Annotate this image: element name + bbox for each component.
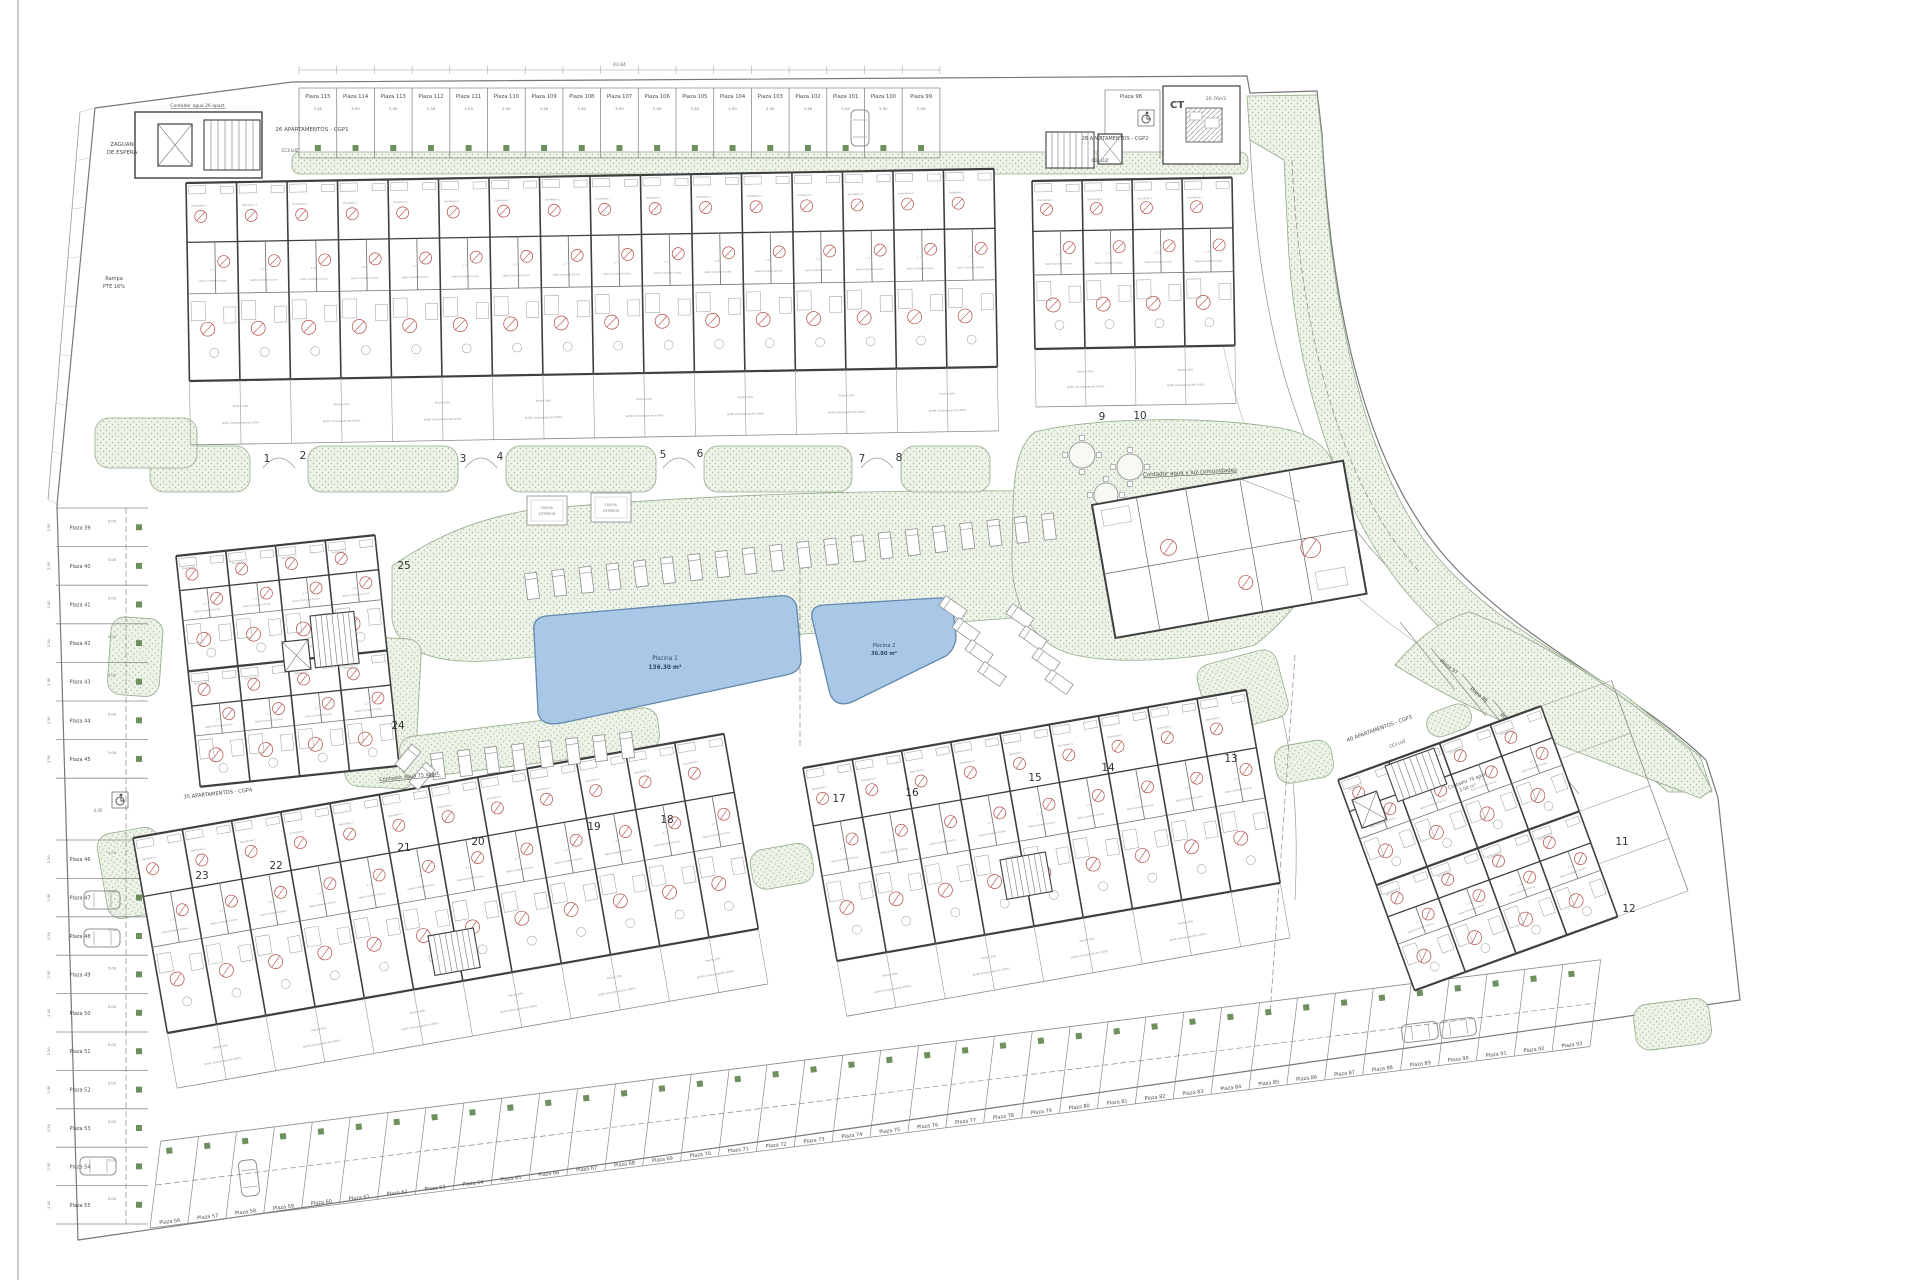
- plan-line: [1135, 1017, 1146, 1104]
- stall-planter: [353, 145, 359, 151]
- plan-line: [709, 937, 719, 992]
- stall-planter: [136, 640, 142, 646]
- unit-number: 18: [660, 814, 673, 826]
- parking-stall-label: Plaza 50: [69, 1011, 90, 1017]
- stall-planter: [1492, 980, 1499, 987]
- site-plan-sheet[interactable]: 43.84Plaza 1152.50Plaza 1142.50Plaza 113…: [0, 0, 1920, 1280]
- green-mound: [506, 446, 656, 492]
- parking-stall-label: Plaza 82: [1144, 1094, 1166, 1103]
- plan-label: Dormitorio 1: [848, 193, 864, 196]
- plan-label: 2.77: [563, 261, 569, 265]
- parking-stall-label: Plaza 104: [720, 94, 746, 100]
- stall-planter: [880, 145, 886, 151]
- plan-label: 5.00: [108, 635, 117, 639]
- plan-line: [1133, 229, 1183, 230]
- plan-line: [846, 370, 847, 434]
- plan-line: [1428, 1024, 1430, 1038]
- parking-stall-label: Plaza 105: [682, 94, 707, 100]
- plan-line: [1363, 988, 1374, 1075]
- parking-stall-label: Plaza 40: [69, 564, 90, 570]
- plan-line: [837, 961, 847, 1016]
- plan-label: DUCHA: [541, 506, 553, 510]
- plan-label: Porche 20%: [233, 404, 249, 408]
- elevator-shaft: [282, 639, 311, 672]
- parking-stall-label: Plaza 88: [1372, 1065, 1394, 1074]
- parking-stall-label: Plaza 81: [1106, 1098, 1128, 1107]
- plan-label: 2.50: [804, 106, 813, 111]
- stall-planter: [1454, 985, 1461, 992]
- plan-line: [238, 241, 288, 242]
- parking-stall-label: Plaza 72: [765, 1141, 787, 1150]
- plan-line: [240, 379, 290, 380]
- plan-label: Salón-Comedor-Cocina: [755, 270, 783, 273]
- zaguan-label: DE ESPERA: [107, 150, 138, 156]
- plan-line: [843, 230, 893, 231]
- plan-label: 5.00: [108, 519, 117, 523]
- car-outline: [238, 1159, 260, 1197]
- plan-line: [442, 377, 443, 441]
- unit-number: 1: [264, 453, 271, 465]
- plan-label: 2.77: [765, 258, 771, 262]
- parking-stall-label: Plaza 47: [69, 896, 90, 902]
- parking-stall-label: Plaza 114: [343, 94, 369, 100]
- plan-label: 2.50: [578, 106, 587, 111]
- stall-planter: [1530, 975, 1537, 982]
- parking-stall-label: Plaza 87: [1334, 1070, 1356, 1079]
- plan-line: [290, 379, 291, 443]
- plan-label: Dormitorio 1: [393, 201, 409, 204]
- plan-label: 2.50: [728, 106, 737, 111]
- plan-line: [694, 372, 695, 436]
- plan-label: 5.00: [108, 890, 117, 894]
- plan-label: Dormitorio 1: [747, 195, 763, 198]
- stall-planter: [136, 1087, 142, 1093]
- green-mound: [1272, 738, 1336, 785]
- plan-line: [1514, 969, 1525, 1056]
- staircase: [204, 120, 260, 170]
- plan-label: Jardín (incluye porche 100%): [221, 420, 260, 425]
- plan-label: 5.00: [108, 1082, 117, 1086]
- plan-line: [543, 374, 593, 375]
- parking-stall-label: Plaza 110: [494, 94, 519, 100]
- plan-label: Porche 20%: [1178, 368, 1194, 372]
- unit-number: 19: [587, 821, 600, 833]
- plan-line: [947, 368, 948, 432]
- plan-label: Jardín (incluye porche 100%): [625, 413, 664, 418]
- stall-planter: [136, 717, 142, 723]
- plan-line: [893, 170, 943, 171]
- plan-label: 2.50: [47, 561, 51, 570]
- plan-line: [694, 371, 744, 372]
- stall-planter: [466, 145, 472, 151]
- plan-label: Jardín (incluye porche 100%): [423, 417, 462, 422]
- parking-stall-label: Plaza 76: [917, 1122, 939, 1131]
- stall-planter: [1075, 1033, 1082, 1040]
- plan-line: [1411, 1026, 1413, 1040]
- stall-planter: [136, 563, 142, 569]
- accessible-parking-icon: [112, 792, 128, 808]
- plan-label: Porche 20%: [738, 395, 754, 399]
- stall-planter: [431, 1114, 438, 1121]
- stall-planter: [621, 1090, 628, 1097]
- plan-rect: [1190, 112, 1202, 120]
- parking-stall-label: Plaza 80: [1069, 1103, 1091, 1112]
- plan-label: Dormitorio 1: [1037, 199, 1053, 202]
- elevator-shaft: [158, 124, 192, 166]
- parking-stall-label: Plaza 98: [1120, 94, 1142, 100]
- plan-label: Salón-Comedor-Cocina: [1095, 261, 1123, 264]
- plan-rect: [1080, 470, 1085, 475]
- plan-label: Porche 20%: [536, 399, 552, 403]
- building-cgp1: Dormitorio 1Salón-Comedor-Cocina2.77Dorm…: [186, 169, 998, 445]
- plan-line: [644, 372, 694, 373]
- unit-number: 8: [896, 452, 903, 464]
- stall-planter: [469, 1109, 476, 1116]
- plan-line: [842, 171, 892, 172]
- unit-number: 20: [471, 836, 484, 848]
- parking-stall-label: Plaza 79: [1031, 1108, 1053, 1117]
- plan-label: 2.50: [47, 716, 51, 725]
- plan-label: Porche 20%: [839, 393, 855, 397]
- green-mound: [308, 446, 458, 492]
- plan-line: [1185, 346, 1186, 404]
- plan-label: 5.00: [108, 1043, 117, 1047]
- plan-label: Salón-Comedor-Cocina: [1145, 261, 1173, 264]
- parking-stall-label: Plaza 66: [538, 1170, 560, 1179]
- plan-line: [414, 990, 424, 1045]
- plan-line: [591, 234, 641, 235]
- plan-label: Dormitorio 1: [242, 204, 258, 207]
- plan-line: [490, 236, 540, 237]
- stall-planter: [1417, 990, 1424, 997]
- entrance-arc: [861, 458, 893, 468]
- plan-line: [236, 181, 286, 182]
- plan-label: 2.50: [47, 1046, 51, 1055]
- unit-number: 12: [1622, 903, 1635, 915]
- ramp-label: PTE 16%: [103, 284, 125, 290]
- plan-line: [795, 370, 845, 371]
- plan-line: [1135, 347, 1136, 405]
- plan-label: 5.00: [108, 1197, 117, 1201]
- plan-line: [593, 373, 643, 374]
- unit-number: 4: [497, 451, 504, 463]
- site-plan-drawing: 43.84Plaza 1152.50Plaza 1142.50Plaza 113…: [0, 0, 1920, 1280]
- plan-line: [442, 376, 492, 377]
- plan-label: 2.77: [614, 261, 620, 265]
- stall-planter: [1379, 994, 1386, 1001]
- stall-planter: [730, 145, 736, 151]
- parking-stall-label: Plaza 45: [69, 757, 90, 763]
- parking-stall-label: Plaza 112: [418, 94, 443, 100]
- parking-stall-label: Plaza 78: [993, 1113, 1015, 1122]
- plan-label: 2.50: [917, 106, 926, 111]
- plan-label: 2.77: [715, 259, 721, 263]
- plan-line: [187, 242, 237, 243]
- plan-line: [315, 1007, 325, 1062]
- plan-label: Dormitorio 1: [191, 204, 207, 207]
- parking-stall-label: Plaza 89: [1410, 1060, 1432, 1069]
- car-outline: [851, 110, 869, 146]
- plan-line: [339, 239, 389, 240]
- plan-label: 2.50: [47, 1123, 51, 1132]
- pool-1-area: 136.30 m²: [649, 664, 682, 671]
- building-cgp2-label: 28 APARTAMENTOS - CGP2: [1082, 136, 1149, 142]
- plan-line: [1280, 883, 1290, 938]
- plan-line: [388, 179, 438, 180]
- plan-label: Jardín (incluye porche 100%): [322, 419, 361, 424]
- plan-rect: [1145, 465, 1150, 470]
- building-cgp4-label: 35 APARTAMENTOS - CGP4: [183, 787, 253, 800]
- plan-label: 4.00: [94, 808, 103, 813]
- plan-label: Dormitorio 1: [292, 203, 308, 206]
- parking-stall-label: Plaza 62: [386, 1189, 408, 1198]
- cc3-luz-label: CC3 LUZ: [1389, 738, 1407, 749]
- plan-line: [681, 1074, 692, 1161]
- plan-label: 2.50: [427, 106, 436, 111]
- plan-label: 2.77: [1205, 250, 1211, 254]
- unit-number: 15: [1028, 772, 1041, 784]
- plan-line: [1598, 838, 1668, 864]
- staircase: [310, 611, 359, 667]
- plan-line: [341, 377, 391, 378]
- parking-stall-label: Plaza 71: [727, 1146, 749, 1155]
- plan-line: [529, 1093, 540, 1180]
- unit-number: 3: [460, 453, 467, 465]
- plan-line: [489, 177, 539, 178]
- plan-label: Salón-Comedor-Cocina: [654, 271, 682, 274]
- plan-label: 5.00: [108, 674, 117, 678]
- plan-label: 2.77: [412, 264, 418, 268]
- green-mound: [748, 841, 816, 891]
- pool-2-area: 36.80 m²: [871, 651, 897, 657]
- plan-line: [72, 207, 86, 209]
- stall-planter: [810, 1066, 817, 1073]
- stall-planter: [166, 1147, 173, 1154]
- plan-line: [793, 231, 843, 232]
- plan-label: 2.77: [253, 596, 260, 601]
- plan-label: Dormitorio 1: [595, 197, 611, 200]
- sun-lounger: [1032, 648, 1060, 673]
- plan-rect: [1104, 477, 1109, 482]
- stall-planter: [136, 602, 142, 608]
- plan-line: [1022, 1031, 1033, 1118]
- plan-content: 43.84Plaza 1152.50Plaza 1142.50Plaza 113…: [47, 62, 1740, 1240]
- plan-label: 2.50: [47, 1085, 51, 1094]
- plan-label: 2.77: [260, 267, 266, 271]
- parking-stall-label: Plaza 53: [69, 1126, 90, 1132]
- plan-line: [186, 182, 236, 183]
- plan-label: 2.50: [615, 106, 624, 111]
- parking-stall-label: Plaza 73: [803, 1137, 825, 1146]
- plan-line: [758, 929, 768, 984]
- parking-stall-label: Plaza 113: [381, 94, 406, 100]
- plan-line: [288, 240, 338, 241]
- parking-stall-label: Plaza 56: [159, 1218, 181, 1227]
- plan-label: 2.50: [766, 106, 775, 111]
- stall-planter: [772, 1071, 779, 1078]
- ramp-label: Rampa: [105, 276, 123, 282]
- green-mound: [107, 616, 164, 697]
- plan-label: Porche 20%: [637, 397, 653, 401]
- plan-line: [1231, 892, 1241, 947]
- stall-planter: [1189, 1018, 1196, 1025]
- stall-planter: [1151, 1023, 1158, 1030]
- plan-line: [985, 935, 995, 990]
- stall-planter: [654, 145, 660, 151]
- stall-planter: [697, 1080, 704, 1087]
- tree-table: [1069, 442, 1095, 468]
- parking-stall-label: Plaza 48: [69, 934, 90, 940]
- plan-line: [1132, 909, 1142, 964]
- plan-label: 2.77: [1155, 251, 1161, 255]
- parking-stall-label: Plaza 46: [69, 857, 90, 863]
- plan-label: 43.84: [613, 62, 626, 68]
- plan-line: [896, 369, 897, 433]
- plan-line: [512, 972, 522, 1027]
- plan-line: [745, 370, 795, 371]
- plan-label: Dormitorio 1: [1087, 198, 1103, 201]
- plan-line: [226, 1132, 237, 1219]
- parking-stall-label: Plaza 102: [795, 94, 820, 100]
- plan-label: Jardín (incluye porche 100%): [1066, 384, 1105, 389]
- building-bottom-middle: Dormitorio 1Salón-Comedor-Cocina2.77Dorm…: [803, 690, 1290, 1016]
- zaguan-label: ZAGUAN: [110, 142, 134, 148]
- plan-label: Jardín (incluye porche 100%): [524, 415, 563, 420]
- plan-label: 2.50: [47, 600, 51, 609]
- cc3-luz-label: CC3 LUZ: [281, 148, 298, 153]
- plan-label: 5.00: [108, 1005, 117, 1009]
- parking-stall-label: Plaza 91: [1485, 1051, 1507, 1060]
- plan-label: 2.50: [653, 106, 662, 111]
- plan-line: [947, 367, 997, 368]
- plan-label: Salón-Comedor-Cocina: [856, 268, 884, 271]
- stall-planter: [1265, 1009, 1272, 1016]
- plan-label: Porche 20%: [435, 400, 451, 404]
- plan-label: Dormitorio 1: [545, 198, 561, 201]
- stall-planter: [616, 145, 622, 151]
- green-mound: [95, 418, 197, 468]
- plan-line: [742, 232, 792, 233]
- plan-rect: [1080, 436, 1085, 441]
- stall-planter: [507, 1104, 514, 1111]
- plan-rect: [238, 1159, 260, 1197]
- unit-number: 17: [832, 793, 845, 805]
- plan-label: Salón-Comedor-Cocina: [300, 278, 328, 281]
- plan-line: [611, 955, 621, 1010]
- plan-label: Dormitorio 1: [1137, 197, 1153, 200]
- plan-label: 2.50: [691, 106, 700, 111]
- plan-line: [846, 369, 896, 370]
- car-outline: [1439, 1017, 1477, 1039]
- sun-lounger: [978, 662, 1006, 687]
- plan-line: [1183, 228, 1233, 229]
- plan-line: [1032, 180, 1082, 181]
- plan-line: [1185, 345, 1235, 346]
- plan-line: [896, 368, 946, 369]
- plan-rect: [978, 662, 1006, 687]
- plan-line: [1466, 1020, 1468, 1034]
- plan-label: 2.50: [47, 931, 51, 940]
- stall-planter: [136, 1202, 142, 1208]
- stall-planter: [767, 145, 773, 151]
- plan-line: [492, 376, 493, 440]
- plan-label: 2.50: [47, 638, 51, 647]
- plan-label: Dormitorio 1: [898, 192, 914, 195]
- plan-label: 2.50: [47, 754, 51, 763]
- stall-planter: [136, 679, 142, 685]
- plan-label: 2.50: [47, 523, 51, 532]
- parking-stall-label: Plaza 51: [69, 1049, 90, 1055]
- parking-stall-label: Plaza 106: [645, 94, 670, 100]
- building-cgp2: Dormitorio 1Salón-Comedor-Cocina2.77Dorm…: [1032, 178, 1236, 407]
- plan-line: [290, 378, 340, 379]
- plan-label: 2.50: [47, 970, 51, 979]
- plan-line: [832, 1055, 843, 1142]
- plan-line: [847, 938, 1290, 1016]
- ct-label: CT: [1170, 100, 1184, 111]
- tree-table: [1117, 454, 1143, 480]
- plan-line: [1083, 230, 1133, 231]
- cc3-luz-label: CC3 LUZ: [1091, 158, 1108, 163]
- plan-label: 2.77: [210, 268, 216, 272]
- parking-stall-label: Plaza 100: [871, 94, 896, 100]
- stall-planter: [136, 1048, 142, 1054]
- stall-planter: [136, 524, 142, 530]
- pool-2-name: Piscina 2: [873, 643, 896, 649]
- plan-label: 5.00: [108, 966, 117, 970]
- plan-label: 2.50: [464, 106, 473, 111]
- plan-label: 2.50: [47, 1008, 51, 1017]
- plan-line: [984, 1036, 995, 1123]
- plan-label: DUCHA: [605, 503, 617, 507]
- plan-label: 2.77: [303, 591, 310, 596]
- plan-line: [364, 998, 374, 1053]
- plan-line: [287, 180, 337, 181]
- parking-stall-label: Plaza 86: [1296, 1074, 1318, 1083]
- stall-planter: [659, 1085, 666, 1092]
- plan-line: [1132, 178, 1182, 179]
- plan-rect: [851, 110, 869, 146]
- plan-label: Porche 20%: [334, 402, 350, 406]
- unit-number: 11: [1615, 836, 1628, 848]
- plan-line: [660, 946, 670, 1001]
- parking-stall-label: Plaza 55: [69, 1203, 90, 1209]
- stall-planter: [1568, 971, 1575, 978]
- parking-row-bottom: Plaza 56Plaza 57Plaza 58Plaza 59Plaza 60…: [150, 960, 1601, 1228]
- stall-planter: [1038, 1037, 1045, 1044]
- plan-label: 2.77: [203, 601, 210, 606]
- parking-stall-label: Plaza 44: [69, 718, 90, 724]
- plan-line: [936, 944, 946, 999]
- plan-label: Salón-Comedor-Cocina: [199, 279, 227, 282]
- plan-line: [1033, 231, 1083, 232]
- plan-label: EXTERIOR: [603, 509, 620, 513]
- plan-label: Dormitorio 1: [797, 194, 813, 197]
- plan-rect: [1128, 482, 1133, 487]
- stall-planter: [136, 1010, 142, 1016]
- plan-label: 2.77: [315, 706, 322, 711]
- plan-label: Salón-Comedor-Cocina: [553, 273, 581, 276]
- plan-line: [944, 228, 994, 229]
- parking-stall-label: Plaza 60: [311, 1199, 333, 1208]
- plan-line: [640, 174, 690, 175]
- plan-line: [167, 1033, 177, 1088]
- stall-planter: [692, 145, 698, 151]
- parking-stall-label: Plaza 59: [273, 1203, 295, 1212]
- plan-rect: [1439, 1017, 1477, 1039]
- parking-stall-label: Plaza 111: [456, 94, 481, 100]
- plan-line: [438, 178, 488, 179]
